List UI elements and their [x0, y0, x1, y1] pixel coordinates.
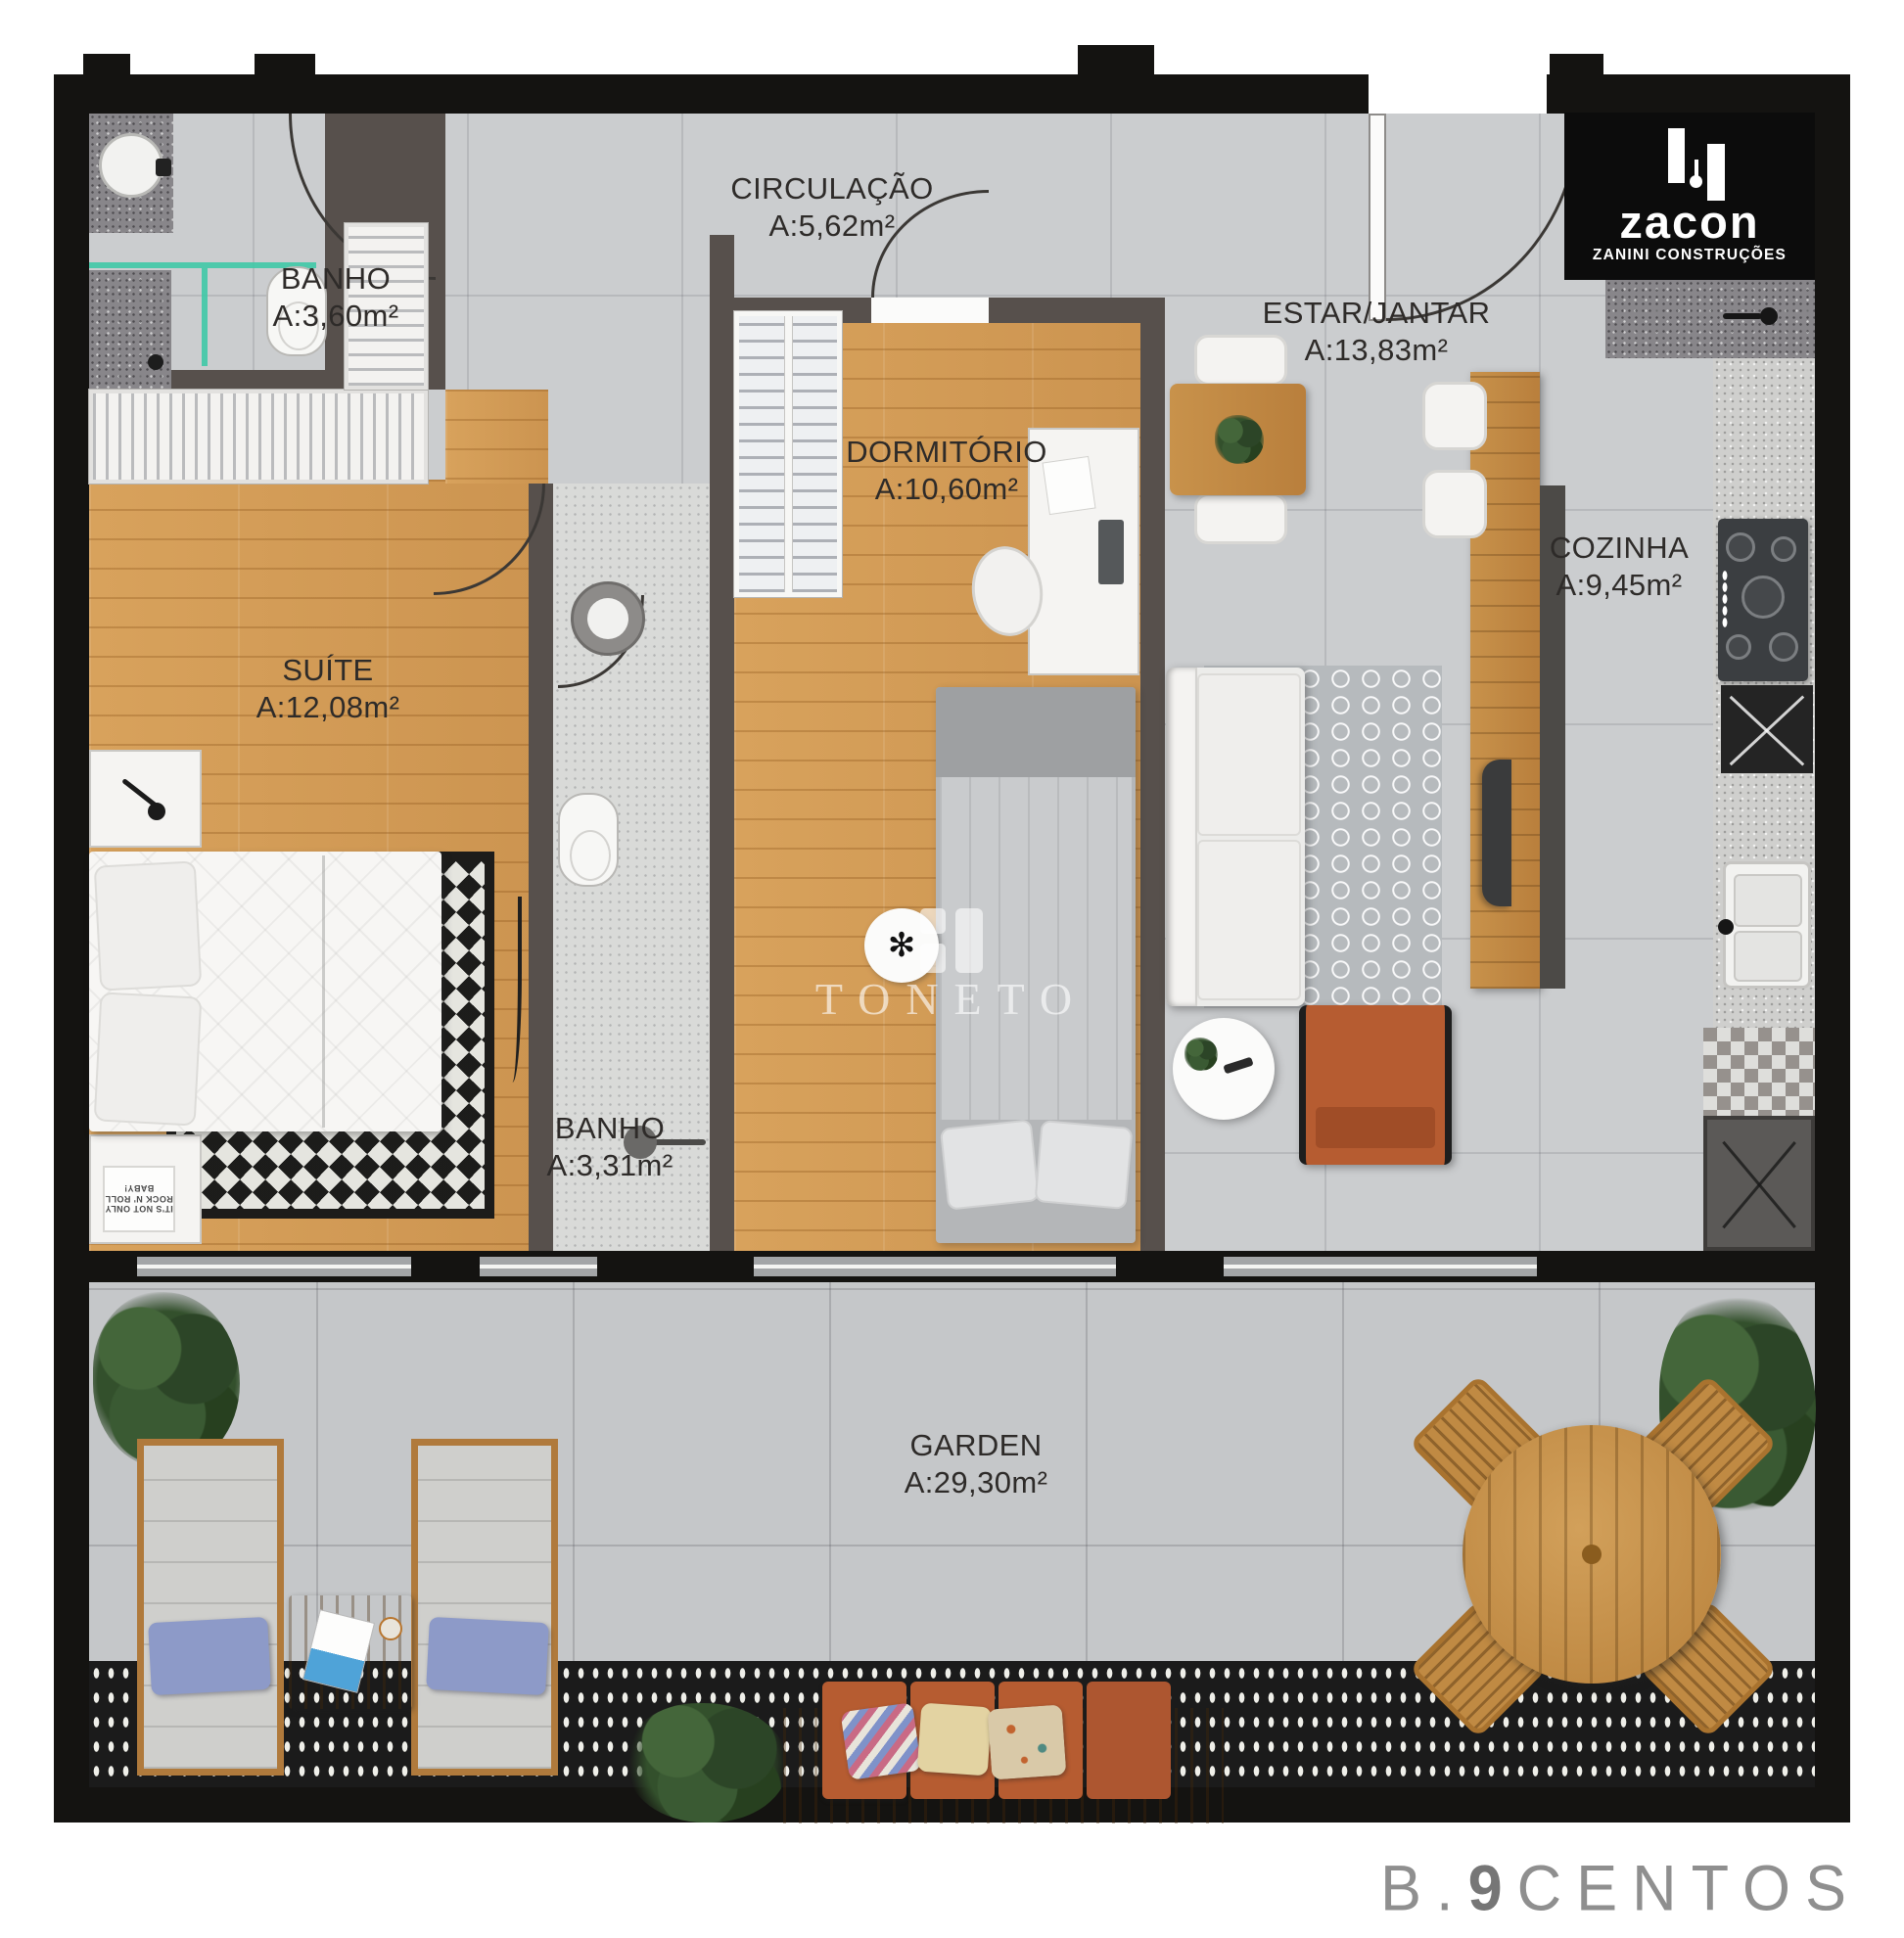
tv	[1482, 760, 1511, 906]
armchair-orange	[1299, 1005, 1452, 1165]
wall-pilaster	[1078, 45, 1154, 74]
suite-bed	[89, 852, 441, 1131]
wall	[989, 298, 1165, 323]
nightstand	[89, 750, 202, 848]
cup	[379, 1617, 402, 1640]
dormitorio-wardrobe	[734, 311, 842, 597]
kitchen-sink	[1723, 861, 1811, 989]
window	[754, 1257, 1116, 1276]
suite-wardrobe	[89, 390, 428, 484]
sun-lounger	[411, 1439, 558, 1776]
outdoor-cushion	[1087, 1682, 1171, 1799]
wall	[1140, 323, 1165, 1251]
kitchen-faucet	[1760, 307, 1778, 325]
dining-chair	[1194, 493, 1287, 544]
shower-glass	[202, 268, 208, 366]
zacon-logo-icon	[1666, 126, 1727, 201]
builder-logo-box: zacon ZANINI CONSTRUÇÕES	[1564, 113, 1815, 280]
sliding-door	[1224, 1257, 1537, 1276]
garden-round-table	[1463, 1425, 1721, 1684]
sun-lounger	[137, 1439, 284, 1776]
builder-logo: zacon	[1564, 199, 1815, 245]
wall-pilaster	[255, 54, 315, 74]
outdoor-sofa-base	[783, 1708, 1224, 1823]
wall-pilaster	[1550, 54, 1603, 74]
lounger-pillow	[148, 1617, 271, 1695]
watermark-text: TONETO	[761, 977, 1142, 1022]
wall	[710, 235, 734, 1251]
pillow	[940, 1119, 1040, 1210]
cooktop	[1718, 519, 1808, 681]
banho1-faucet	[156, 159, 171, 176]
project-name: B.9CENTOS	[1380, 1852, 1861, 1925]
bar-stool	[1422, 470, 1487, 538]
dormitorio-door-opening	[871, 298, 989, 323]
banho1-sink	[99, 133, 163, 198]
room-label-circulacao: CIRCULAÇÃOA:5,62m²	[730, 170, 933, 246]
magazine	[302, 1609, 375, 1693]
entry-opening	[1369, 74, 1547, 114]
toneto-logo-icon	[920, 908, 983, 973]
monitor	[1098, 520, 1124, 584]
throw-pillow	[917, 1703, 993, 1776]
wall-pilaster	[83, 54, 130, 74]
pillow	[1035, 1120, 1134, 1210]
floor-plan-canvas: IT'S NOT ONLY ROCK N' ROLL BABY!	[0, 0, 1904, 1938]
builder-tagline: ZANINI CONSTRUÇÕES	[1564, 248, 1815, 263]
coffee-table-plant	[1184, 1038, 1218, 1071]
pillow	[94, 860, 203, 991]
bar-stool	[1422, 382, 1487, 450]
papers	[1042, 456, 1095, 515]
room-label-banho2: BANHOA:3,31m²	[547, 1110, 673, 1185]
coffee-table	[1173, 1018, 1275, 1120]
room-label-dormitorio: DORMITÓRIOA:10,60m²	[846, 434, 1047, 509]
kitchen-tile-floor	[1703, 1028, 1815, 1116]
table-plant	[1215, 415, 1264, 464]
window	[480, 1257, 597, 1276]
nightstand: IT'S NOT ONLY ROCK N' ROLL BABY!	[89, 1134, 202, 1244]
window	[137, 1257, 411, 1276]
decor	[1223, 1057, 1253, 1075]
room-label-cozinha: COZINHAA:9,45m²	[1550, 530, 1689, 605]
suite-poster: IT'S NOT ONLY ROCK N' ROLL BABY!	[103, 1166, 175, 1232]
kitchen-counter-top	[1605, 280, 1815, 358]
entry-door	[1369, 114, 1386, 321]
throw-pillow	[988, 1704, 1067, 1779]
room-label-banho1: BANHOA:3,60m²	[273, 260, 399, 336]
banho2-sink	[571, 581, 645, 656]
lounger-pillow	[426, 1617, 549, 1695]
garden-side-table	[289, 1595, 412, 1709]
sofa	[1166, 668, 1305, 1006]
shower-faucet	[148, 354, 163, 370]
toneto-watermark: TONETO	[761, 908, 1142, 1022]
room-label-garden: GARDENA:29,30m²	[905, 1427, 1048, 1502]
throw-pillow	[840, 1702, 921, 1780]
room-label-suite: SUÍTEA:12,08m²	[256, 652, 400, 727]
room-label-estar-jantar: ESTAR/JANTARA:13,83m²	[1263, 295, 1491, 370]
pillow	[94, 992, 203, 1126]
prep-table	[1721, 685, 1813, 773]
dining-table	[1170, 384, 1306, 495]
toilet	[558, 793, 619, 887]
storage-cabinet	[1703, 1116, 1815, 1251]
suite-entry-floor	[445, 390, 548, 484]
plant	[627, 1703, 788, 1823]
